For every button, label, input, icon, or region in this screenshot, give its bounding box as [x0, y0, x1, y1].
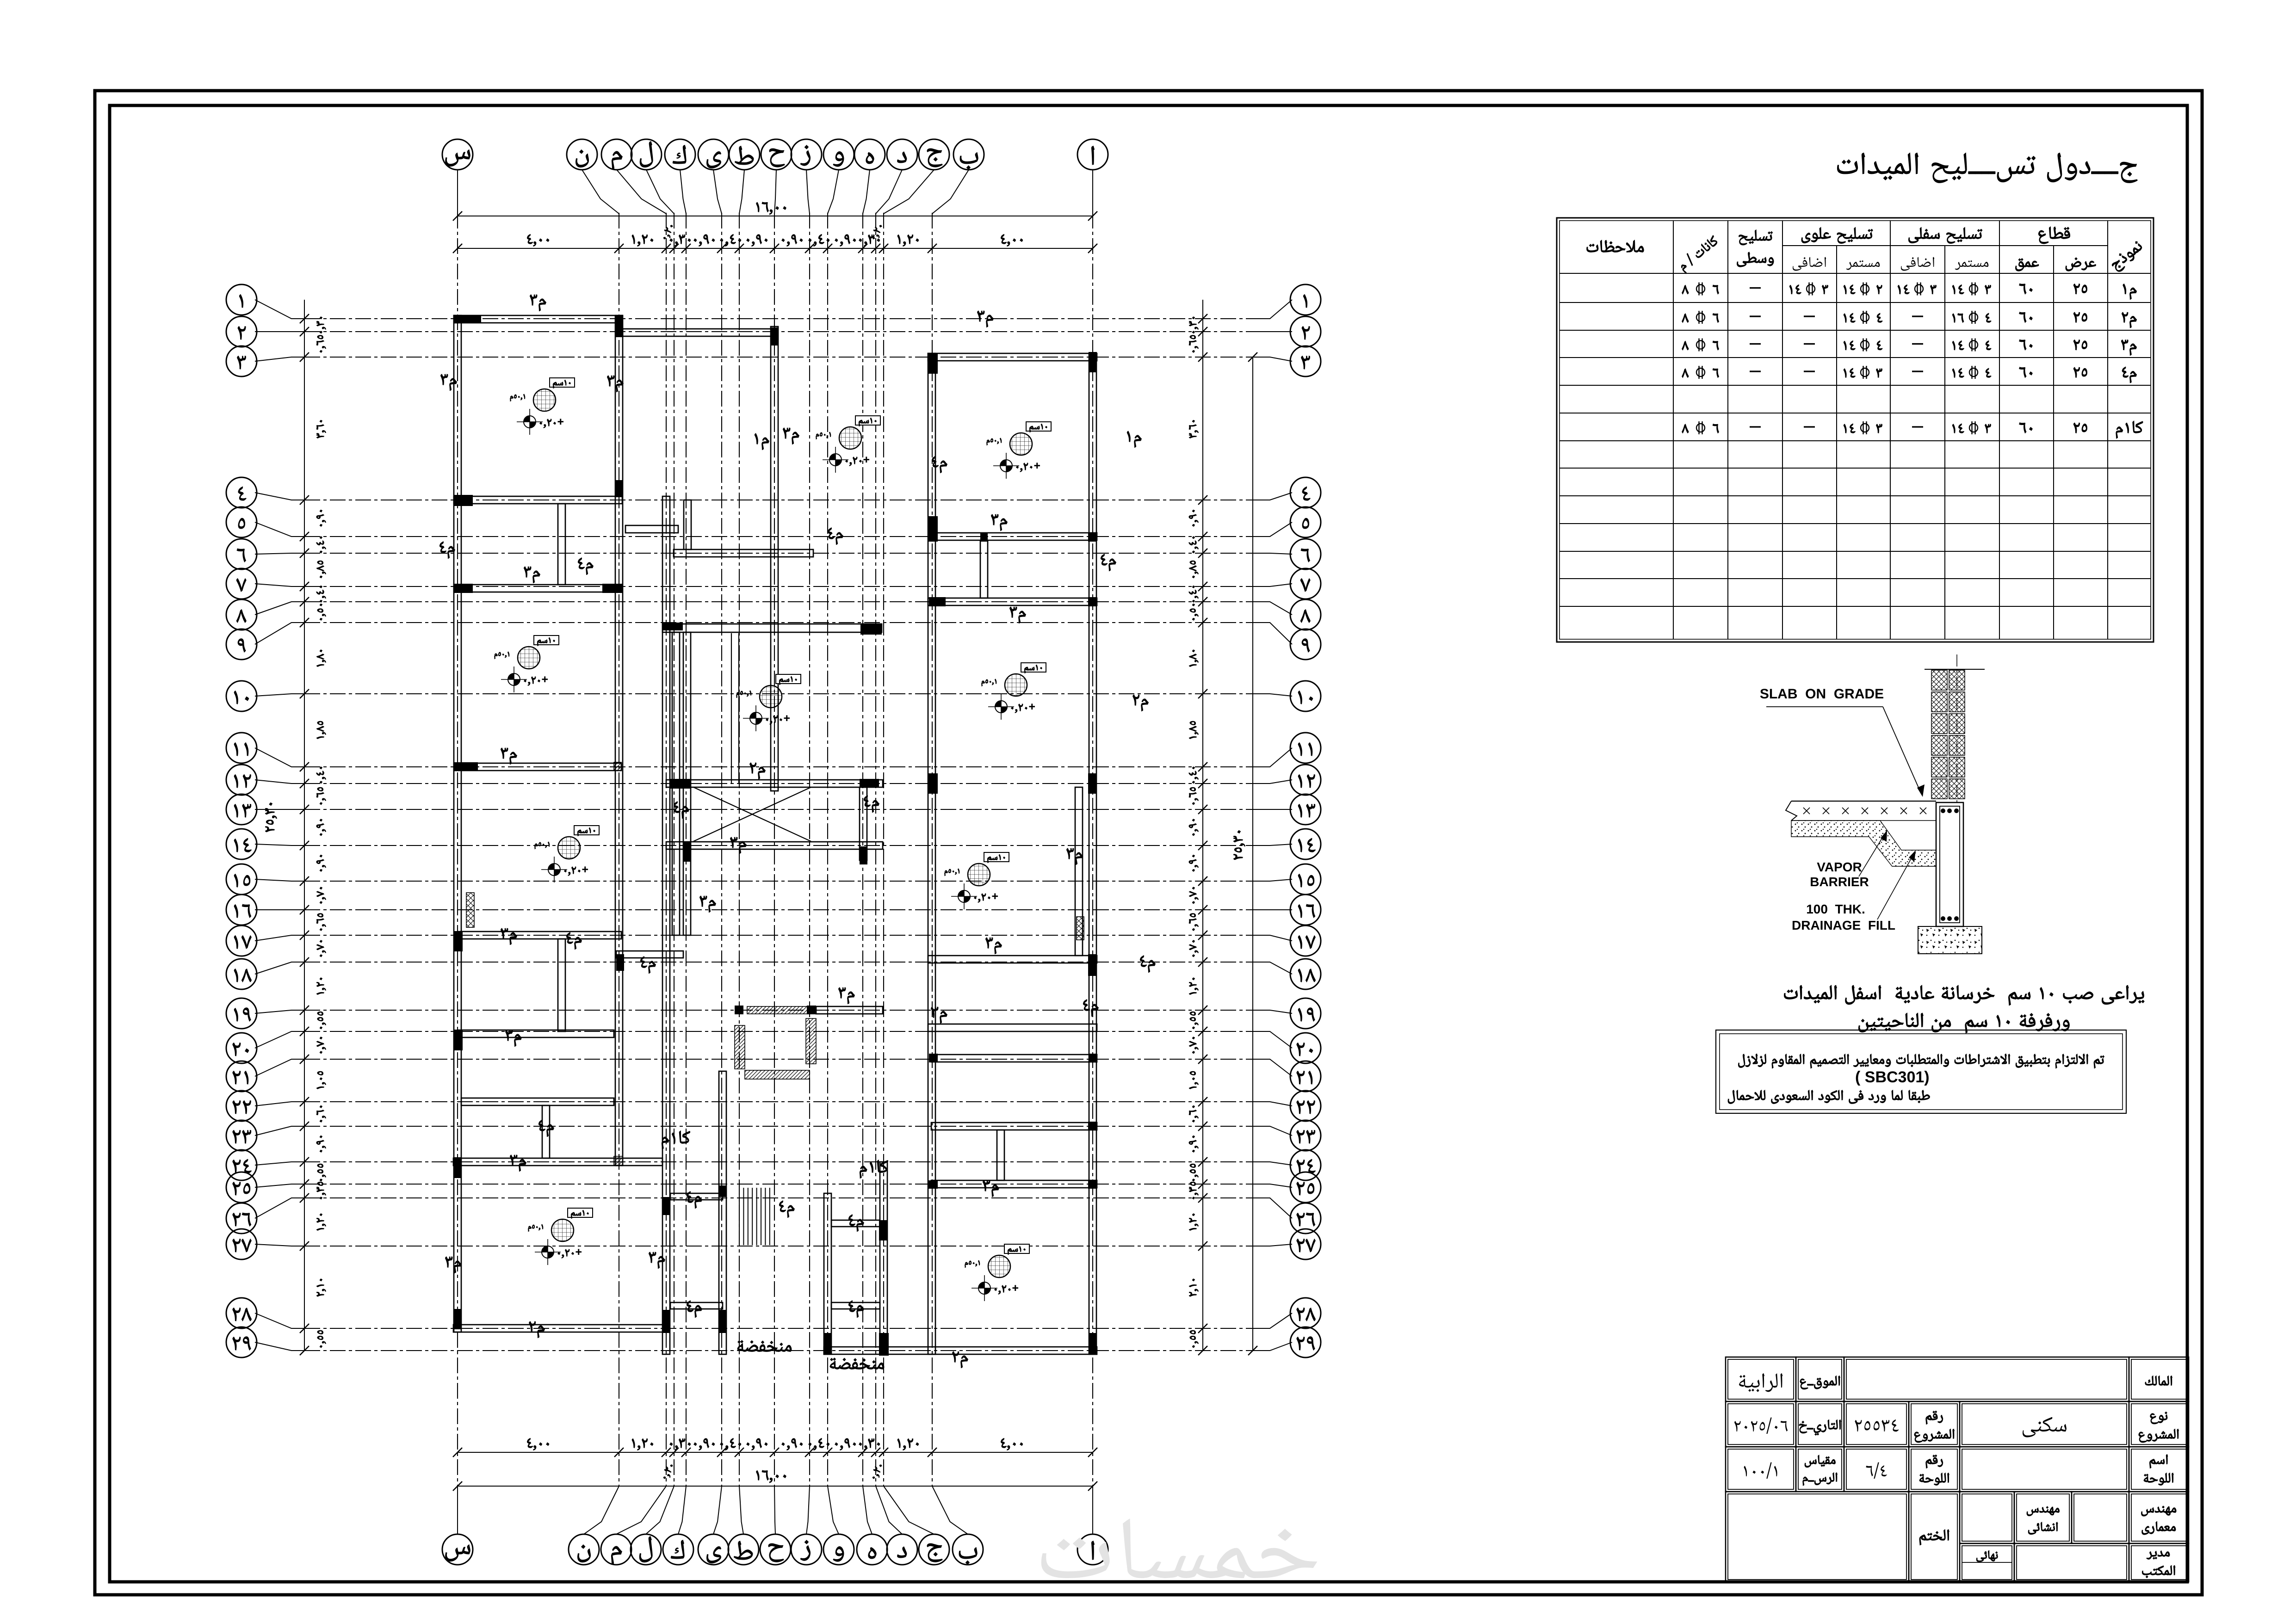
svg-text:100 THK.: 100 THK. [1806, 902, 1865, 916]
svg-text:BARRIER: BARRIER [1810, 875, 1869, 889]
svg-text:( SBC301): ( SBC301) [1855, 1068, 1930, 1086]
svg-text:SLAB ON GRADE: SLAB ON GRADE [1760, 686, 1884, 702]
svg-text:VAPOR: VAPOR [1817, 860, 1862, 874]
svg-text:DRAINAGE FILL: DRAINAGE FILL [1792, 918, 1895, 932]
